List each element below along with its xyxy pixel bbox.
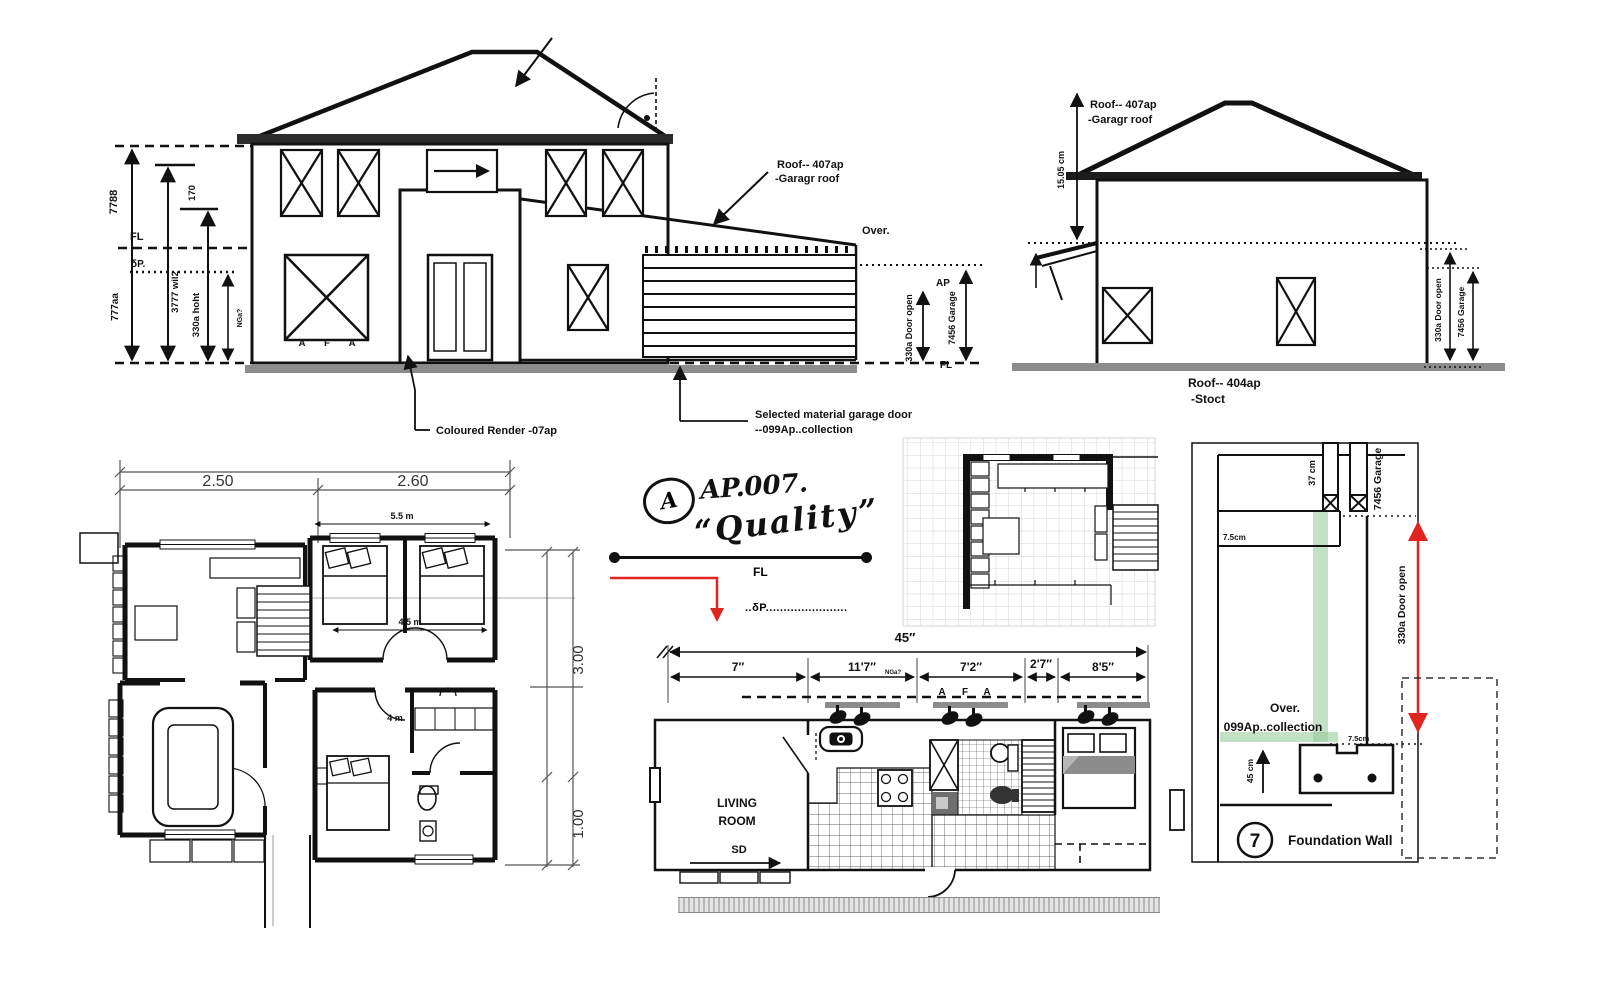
front-elevation-drawing: 7788 3777 wil2 170 330a hoht NGa? 777aa … bbox=[100, 30, 1000, 450]
front-ground bbox=[245, 365, 857, 373]
detail-title: Foundation Wall bbox=[1288, 833, 1392, 848]
ap-label: AP bbox=[936, 278, 950, 289]
long-floor-plan: 45″ 7″ 11'7″ NGa? 7'2″ 2'7″ 8'5″ A F A bbox=[640, 625, 1210, 920]
window-letter-a2: A bbox=[349, 338, 356, 349]
kitchen-area bbox=[808, 727, 932, 870]
roof-note-leader bbox=[714, 172, 768, 224]
dim-55m-label: 5.5 m bbox=[390, 511, 413, 521]
side-elevation-drawing: 15.05 cm Roof-- 407ap -Garagr roof 330a … bbox=[1000, 78, 1520, 418]
red-leader-arrow bbox=[605, 572, 735, 627]
fl-note-label: FL bbox=[753, 565, 768, 579]
side-dim-garage-label: 7456 Garage bbox=[1456, 286, 1466, 337]
dim-260-label: 2.60 bbox=[397, 473, 428, 490]
side-caption-line1: Roof-- 404ap bbox=[1188, 376, 1261, 390]
garage-note-line2: --099Ap..collection bbox=[755, 424, 853, 436]
dp-left-label: δP. bbox=[131, 259, 145, 270]
dim-4m-label: 4 m bbox=[387, 713, 403, 723]
long-living-room bbox=[650, 720, 808, 870]
over-line1: Over. bbox=[1270, 701, 1300, 715]
floor-plan-drawing: 2.50 2.60 5.5 m 4 bbox=[75, 438, 605, 948]
dim-extension-lines bbox=[668, 645, 1148, 703]
footing-rebar-left bbox=[1314, 774, 1323, 783]
sd-label: SD bbox=[731, 844, 746, 856]
dim-seg3-label: 7'2″ bbox=[960, 660, 982, 674]
datum-dot-left bbox=[609, 552, 620, 563]
dim-door-open-label: 330a Door open bbox=[904, 294, 914, 362]
dim-170-label: 170 bbox=[187, 185, 198, 201]
entry-steps bbox=[680, 872, 790, 883]
roof-note-line2: -Garagr roof bbox=[775, 173, 840, 185]
dim-3777-label: 3777 wil2 bbox=[170, 271, 181, 313]
datum-dot-right bbox=[861, 552, 872, 563]
exterior-door-swing bbox=[925, 867, 955, 897]
detail-number: 7 bbox=[1250, 831, 1261, 852]
side-caption-line2: -Stoct bbox=[1191, 392, 1225, 406]
dim-7788-label: 7788 bbox=[108, 190, 120, 214]
window-letter-a1: A bbox=[299, 338, 306, 349]
drawing-sheet: 7788 3777 wil2 170 330a hoht NGa? 777aa … bbox=[0, 0, 1600, 997]
dim-seg5-label: 8'5″ bbox=[1092, 660, 1114, 674]
long-bedroom bbox=[1055, 728, 1184, 868]
side-roof-note-line2: -Garagr roof bbox=[1088, 114, 1153, 126]
side-ground bbox=[1012, 363, 1505, 371]
footing-block bbox=[1300, 745, 1393, 793]
side-roof-note-line1: Roof-- 407ap bbox=[1090, 99, 1157, 111]
dim-wall-bottom-label: 7.5cm bbox=[1348, 734, 1370, 743]
dim-777aa-label: 777aa bbox=[110, 293, 121, 321]
garage-eave-ticks bbox=[645, 246, 848, 253]
dim-total-label: 45″ bbox=[895, 630, 916, 645]
dim-wall-top-label: 7.5cm bbox=[1223, 533, 1246, 542]
dim-seg4-label: 2'7″ bbox=[1030, 657, 1052, 671]
dim-post-label: 37 cm bbox=[1307, 460, 1317, 486]
grid-stairs bbox=[1095, 505, 1158, 570]
bedrooms bbox=[310, 534, 495, 661]
over-label: Over. bbox=[862, 225, 890, 237]
front-left-dimensions bbox=[132, 150, 228, 360]
dim-300-label: 3.00 bbox=[570, 645, 587, 674]
sofa bbox=[153, 708, 233, 826]
dim-seg1-label: 7″ bbox=[732, 660, 745, 674]
bubble-letter: A bbox=[658, 487, 679, 516]
dim-100-label: 1.00 bbox=[570, 809, 587, 838]
entry-door bbox=[428, 255, 492, 360]
corridor bbox=[265, 835, 310, 928]
side-garage-roof-edge bbox=[1036, 243, 1097, 300]
detail-panel-border bbox=[1192, 443, 1418, 862]
dim-seg2-label: 11'7″ bbox=[848, 660, 876, 674]
dim-roof-height-label: 15.05 cm bbox=[1056, 151, 1066, 189]
fl-left-label: FL bbox=[130, 231, 144, 243]
garage-door bbox=[643, 255, 856, 357]
window-letter-f: F bbox=[324, 338, 330, 349]
stairs bbox=[237, 586, 310, 656]
bedroom-bath-block bbox=[315, 688, 495, 864]
dp-dotted-label: ..δP....................... bbox=[745, 602, 848, 614]
front-roof bbox=[255, 38, 668, 138]
roof-note-line1: Roof-- 407ap bbox=[777, 159, 844, 171]
revision-bubble: A bbox=[639, 474, 698, 528]
living-room-line2: ROOM bbox=[718, 814, 755, 828]
side-dim-door-open-label: 330a Door open bbox=[1433, 278, 1443, 342]
detail-door-open-label: 330a Door open bbox=[1396, 566, 1408, 645]
dim-330a-hoht-label: 330a hoht bbox=[191, 292, 202, 337]
dim-garage-label: 7456 Garage bbox=[947, 291, 957, 345]
bathroom-area bbox=[930, 720, 1055, 870]
datum-line bbox=[617, 556, 869, 559]
living-room-line1: LIVING bbox=[717, 796, 757, 810]
fl-right-label: FL bbox=[940, 360, 952, 371]
dim-45m-label: 4.5 m bbox=[398, 617, 421, 627]
side-right-dimensions bbox=[1420, 249, 1482, 367]
render-note: Coloured Render -07ap bbox=[436, 425, 557, 437]
dim-footing-label: 45 cm bbox=[1245, 759, 1255, 784]
dim-seg2-sub-label: NGa? bbox=[885, 670, 901, 676]
foundation-wall-detail: 37 cm 7456 Garage 7.5cm 330a Door open O… bbox=[1185, 435, 1515, 875]
scale-strip bbox=[678, 897, 1160, 913]
grid-kitchen-plan bbox=[895, 430, 1175, 635]
over-line2: 099Ap..collection bbox=[1224, 720, 1323, 734]
dim-nga-label: NGa? bbox=[237, 309, 244, 328]
garage-note-line1: Selected material garage door bbox=[755, 409, 913, 421]
wall-light-fixtures bbox=[825, 702, 1150, 730]
footing-rebar-right bbox=[1368, 774, 1377, 783]
dim-250-label: 2.50 bbox=[202, 473, 233, 490]
detail-garage-label: 7456 Garage bbox=[1372, 448, 1384, 511]
